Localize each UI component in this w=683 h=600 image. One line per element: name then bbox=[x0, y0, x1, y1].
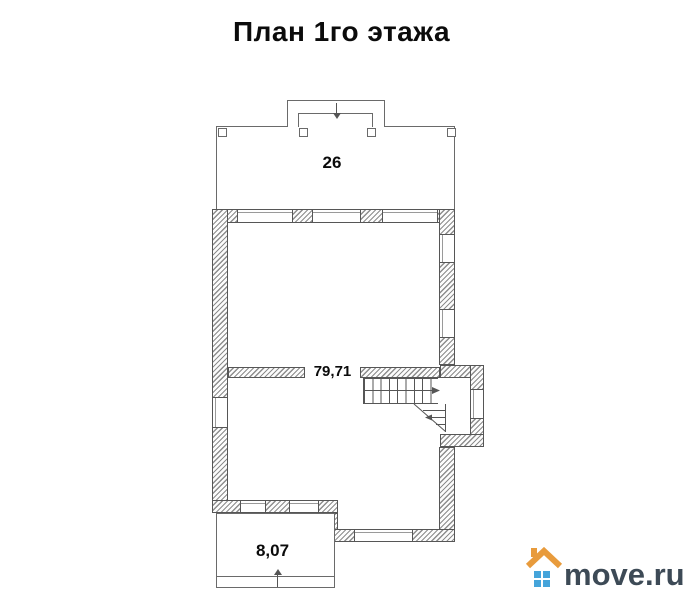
page-title: План 1го этажа bbox=[0, 16, 683, 48]
staircase-lines bbox=[0, 0, 683, 600]
window bbox=[383, 209, 437, 223]
window bbox=[238, 209, 292, 223]
window bbox=[241, 500, 265, 513]
wall-segment bbox=[318, 500, 338, 513]
window bbox=[355, 529, 412, 542]
wall-segment bbox=[360, 209, 383, 223]
terrace-column bbox=[299, 128, 308, 137]
wall-segment bbox=[439, 337, 455, 365]
window bbox=[313, 209, 360, 223]
arrow-left-icon bbox=[425, 415, 432, 421]
main-area-label: 79,71 bbox=[305, 363, 360, 380]
window bbox=[212, 398, 228, 427]
wall-segment bbox=[439, 209, 455, 235]
window bbox=[290, 500, 318, 513]
interior-wall-segment bbox=[228, 367, 305, 378]
arrow-up-icon bbox=[274, 569, 282, 575]
house-icon bbox=[526, 547, 562, 591]
wall-segment bbox=[439, 262, 455, 310]
window bbox=[439, 310, 455, 337]
terrace-column bbox=[367, 128, 376, 137]
wall-segment bbox=[212, 500, 241, 513]
wall-segment bbox=[412, 529, 455, 542]
terrace-area-label: 26 bbox=[302, 153, 362, 173]
moveru-logo-text: move.ru bbox=[564, 558, 683, 592]
window bbox=[470, 390, 484, 418]
bay-wall-bottom bbox=[440, 434, 484, 447]
wall-segment bbox=[265, 500, 290, 513]
interior-wall-segment bbox=[360, 367, 440, 378]
porch-arrow-line bbox=[277, 575, 278, 587]
porch-area-label: 8,07 bbox=[240, 541, 305, 561]
bay-wall-right bbox=[470, 365, 484, 390]
moveru-logo[interactable]: move.ru bbox=[524, 545, 680, 597]
terrace-column bbox=[218, 128, 227, 137]
wall-segment bbox=[292, 209, 313, 223]
terrace-column bbox=[447, 128, 456, 137]
staircase-flight bbox=[363, 378, 438, 404]
floor-plan-page: План 1го этажа 26 79,71 bbox=[0, 0, 683, 600]
wall-segment bbox=[439, 447, 455, 542]
arrow-down-icon bbox=[333, 113, 341, 119]
porch-step-line bbox=[216, 576, 335, 577]
wall-segment bbox=[212, 209, 228, 398]
window bbox=[439, 235, 455, 262]
